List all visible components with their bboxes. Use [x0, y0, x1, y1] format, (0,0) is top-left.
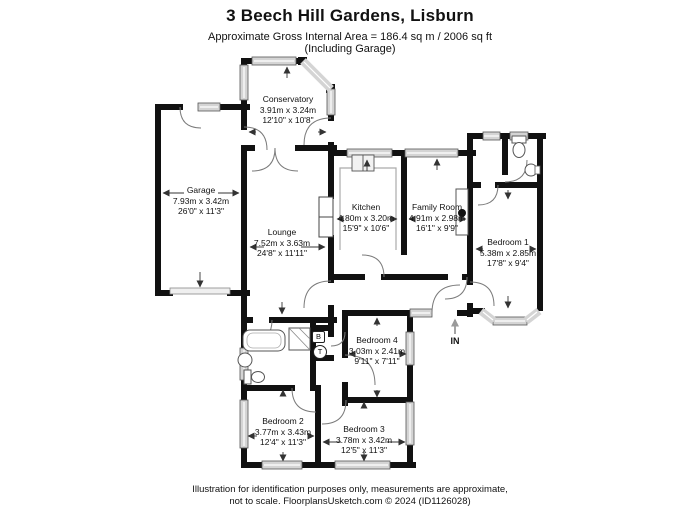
lounge-unit: [319, 197, 333, 237]
tank-marker: T: [313, 345, 327, 359]
disclaimer-line-1: Illustration for identification purposes…: [0, 484, 700, 495]
room-dim-imperial: 12'4" x 11'3": [255, 437, 311, 448]
garage-door: [170, 288, 230, 294]
room-dim-imperial: 16'1" x 9'9": [409, 223, 465, 234]
room-dim-imperial: 15'9" x 10'6": [338, 223, 394, 234]
room-label-garage: Garage 7.93m x 3.42m 26'0" x 11'3": [173, 185, 229, 217]
room-name: Conservatory: [260, 94, 316, 105]
room-dim-metric: 3.03m x 2.41m: [349, 346, 405, 357]
disclaimer-line-2: not to scale. FloorplansUsketch.com © 20…: [0, 496, 700, 507]
room-name: Garage: [173, 185, 229, 196]
toilet-ensuite-icon: [512, 136, 526, 158]
room-label-bedroom-4: Bedroom 4 3.03m x 2.41m 9'11" x 7'11": [349, 335, 405, 367]
room-name: Bedroom 2: [255, 416, 311, 427]
room-label-lounge: Lounge 7.52m x 3.63m 24'8" x 11'11": [254, 227, 310, 259]
room-dim-imperial: 12'5" x 11'3": [336, 445, 392, 456]
room-label-family-room: Family Room 4.91m x 2.98m 16'1" x 9'9": [409, 202, 465, 234]
room-dim-metric: 3.91m x 3.24m: [260, 105, 316, 116]
room-label-kitchen: Kitchen 4.80m x 3.20m 15'9" x 10'6": [338, 202, 394, 234]
floorplan-page: 3 Beech Hill Gardens, Lisburn Approximat…: [0, 0, 700, 512]
room-dim-metric: 3.78m x 3.42m: [336, 435, 392, 446]
room-dim-imperial: 26'0" x 11'3": [173, 206, 229, 217]
bathtub-icon: [243, 330, 285, 351]
room-dim-imperial: 17'8" x 9'4": [480, 258, 536, 269]
room-label-conservatory: Conservatory 3.91m x 3.24m 12'10" x 10'8…: [260, 94, 316, 126]
toilet-bathroom-icon: [244, 370, 265, 384]
room-label-bedroom-2: Bedroom 2 3.77m x 3.43m 12'4" x 11'3": [255, 416, 311, 448]
entrance-label: IN: [451, 336, 460, 346]
room-dim-imperial: 9'11" x 7'11": [349, 356, 405, 367]
room-name: Bedroom 3: [336, 424, 392, 435]
sink-bathroom-icon: [238, 353, 252, 367]
shower-icon: [289, 328, 310, 350]
room-dim-metric: 7.93m x 3.42m: [173, 196, 229, 207]
room-dim-metric: 5.38m x 2.85m: [480, 248, 536, 259]
room-dim-imperial: 24'8" x 11'11": [254, 248, 310, 259]
room-dim-metric: 3.77m x 3.43m: [255, 427, 311, 438]
boiler-marker: B: [312, 331, 325, 343]
room-name: Lounge: [254, 227, 310, 238]
sink-ensuite-icon: [525, 164, 540, 176]
room-dim-metric: 7.52m x 3.63m: [254, 238, 310, 249]
room-name: Kitchen: [338, 202, 394, 213]
room-dim-metric: 4.91m x 2.98m: [409, 213, 465, 224]
room-name: Bedroom 4: [349, 335, 405, 346]
room-dim-metric: 4.80m x 3.20m: [338, 213, 394, 224]
room-name: Bedroom 1: [480, 237, 536, 248]
room-label-bedroom-3: Bedroom 3 3.78m x 3.42m 12'5" x 11'3": [336, 424, 392, 456]
room-label-bedroom-1: Bedroom 1 5.38m x 2.85m 17'8" x 9'4": [480, 237, 536, 269]
room-dim-imperial: 12'10" x 10'8": [260, 115, 316, 126]
room-name: Family Room: [409, 202, 465, 213]
